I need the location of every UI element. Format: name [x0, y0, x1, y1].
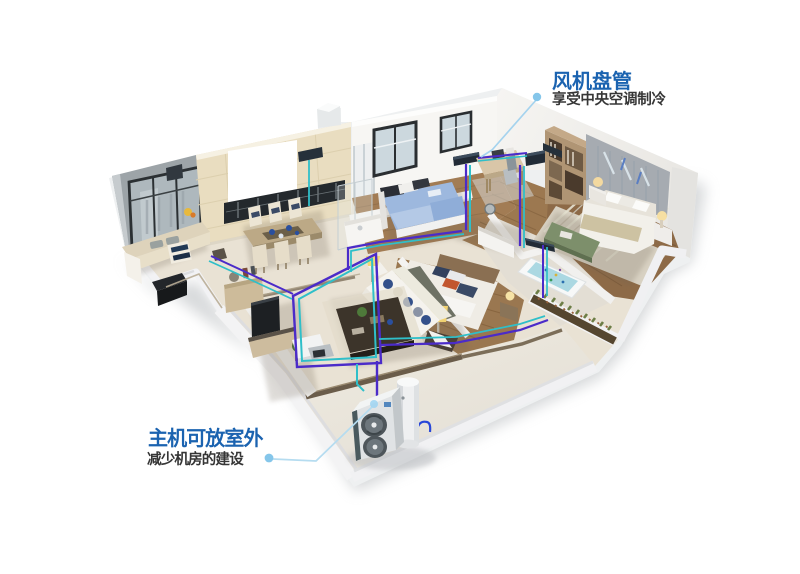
svg-text:减少机房的建设: 减少机房的建设 [147, 450, 244, 468]
svg-text:风机盘管: 风机盘管 [552, 69, 632, 93]
svg-text:主机可放室外: 主机可放室外 [148, 426, 263, 450]
svg-text:享受中央空调制冷: 享受中央空调制冷 [552, 90, 666, 108]
